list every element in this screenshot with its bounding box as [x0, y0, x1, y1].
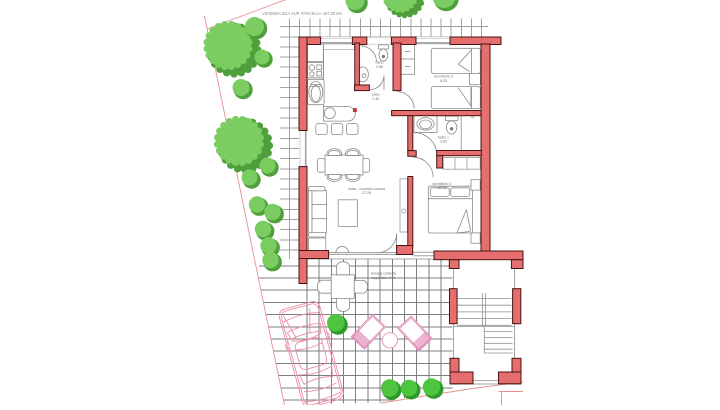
svg-text:2.55: 2.55 — [376, 65, 383, 69]
svg-text:8.25: 8.25 — [440, 79, 447, 83]
svg-text:3.85: 3.85 — [440, 140, 447, 144]
svg-text:VIVIENDA DUA SUP. PARCELA=: VIVIENDA DUA SUP. PARCELA= 157.00 M2. — [262, 11, 343, 16]
svg-text:1.40: 1.40 — [372, 97, 379, 101]
svg-text:m.: m. — [471, 116, 475, 120]
svg-text:27.26: 27.26 — [362, 191, 371, 195]
svg-text:10.70: 10.70 — [438, 186, 447, 190]
svg-text:superficie 4.00: superficie 4.00 — [372, 276, 395, 280]
